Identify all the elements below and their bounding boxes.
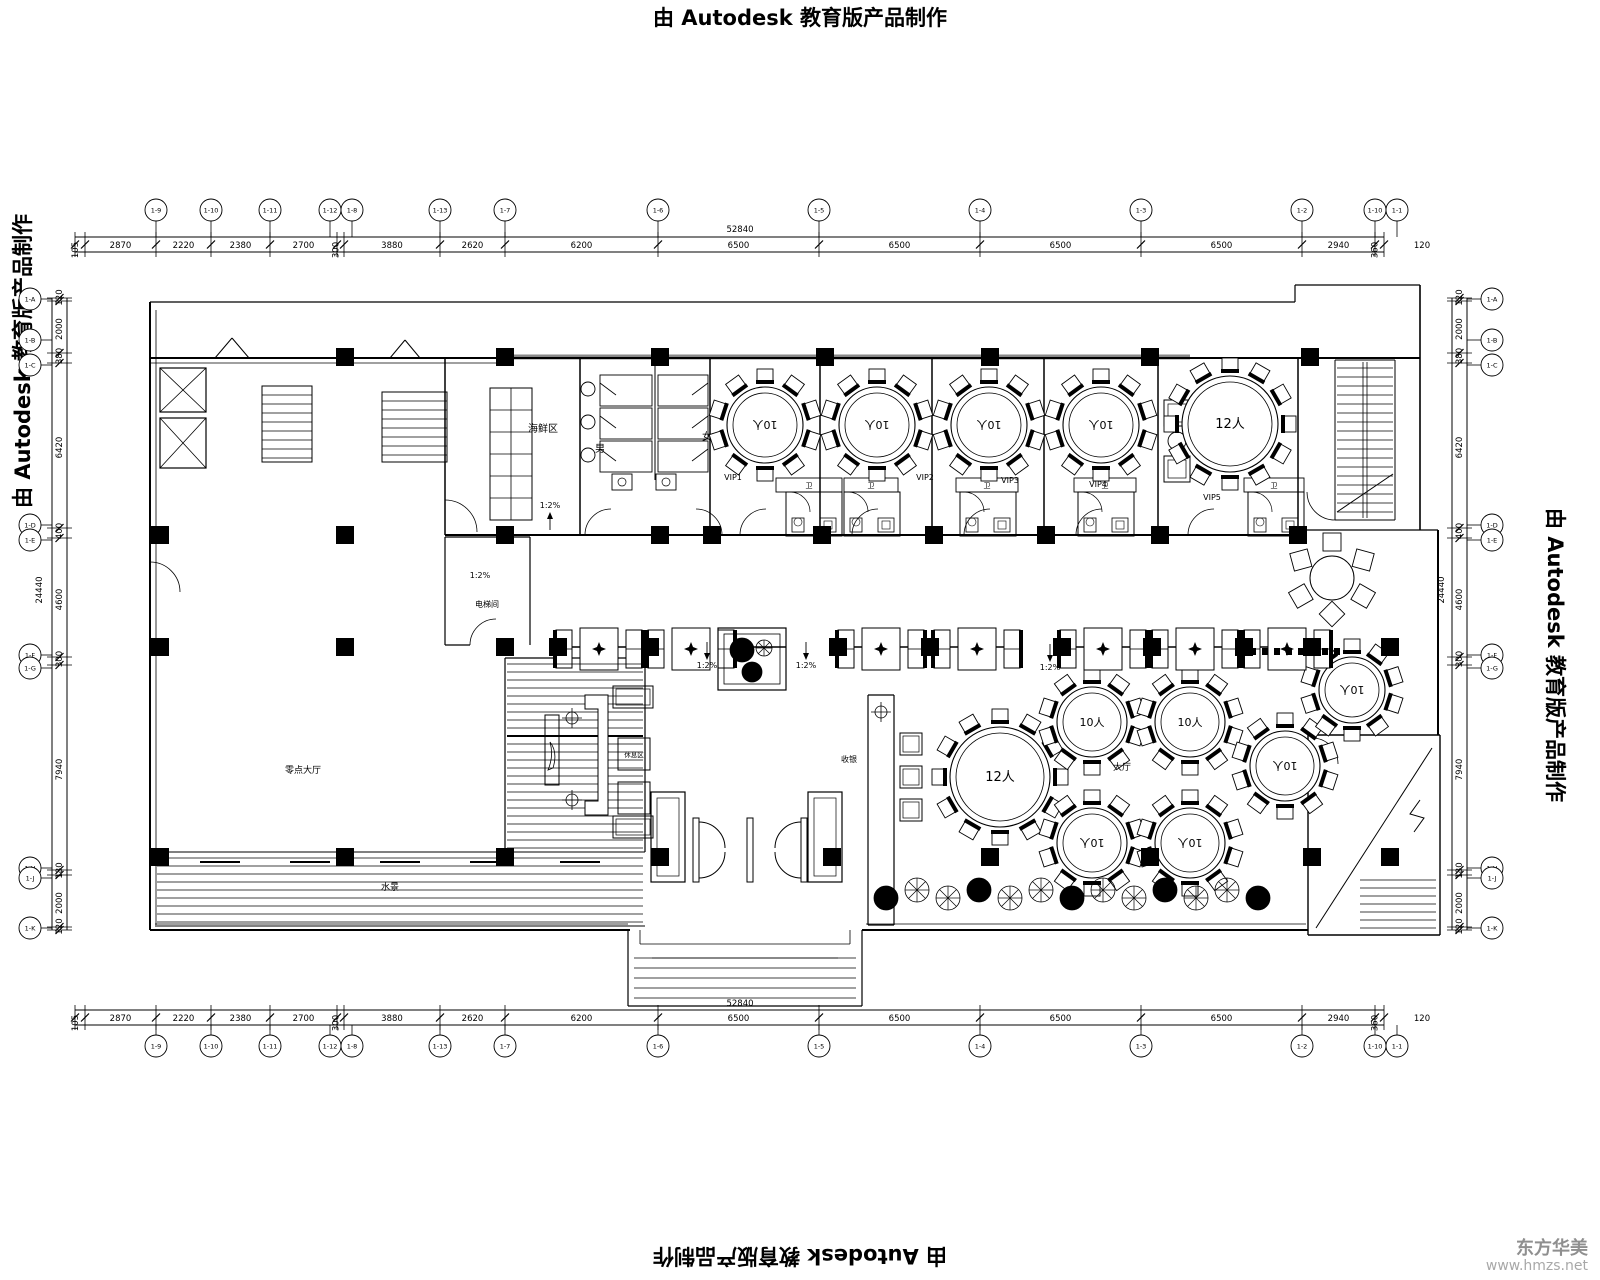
- chair: [1181, 790, 1199, 805]
- svg-text:360: 360: [1371, 1015, 1381, 1031]
- booth-unit: [931, 628, 1023, 670]
- svg-text:1-3: 1-3: [1136, 1043, 1147, 1051]
- chair: [913, 399, 933, 421]
- svg-text:1-11: 1-11: [263, 1043, 278, 1051]
- chair: [1137, 399, 1157, 421]
- chair: [1039, 818, 1059, 840]
- svg-text:1-D: 1-D: [24, 522, 36, 530]
- svg-text:180: 180: [55, 862, 65, 878]
- svg-text:1:2%: 1:2%: [1040, 663, 1061, 672]
- chair: [1276, 713, 1294, 728]
- svg-text:2380: 2380: [230, 241, 252, 251]
- chair: [1025, 399, 1045, 421]
- svg-text:1-2: 1-2: [1297, 207, 1308, 215]
- wood-deck: [507, 664, 643, 848]
- room-label-seafood: 海鲜区: [528, 422, 558, 435]
- round-table: 10人: [1137, 669, 1243, 775]
- svg-text:400: 400: [1455, 523, 1465, 539]
- svg-text:6200: 6200: [571, 1014, 593, 1024]
- svg-text:120: 120: [1414, 241, 1430, 251]
- chair: [1092, 466, 1110, 481]
- svg-text:卫: 卫: [806, 482, 813, 490]
- svg-text:1-G: 1-G: [24, 665, 36, 673]
- round-table: 12人: [1164, 358, 1296, 490]
- svg-text:4600: 4600: [55, 589, 65, 611]
- round-table: 10人: [1045, 369, 1157, 481]
- room-label-cashier: 收银: [841, 754, 857, 764]
- svg-text:1-J: 1-J: [1488, 875, 1497, 883]
- svg-text:2620: 2620: [462, 241, 484, 251]
- svg-text:2940: 2940: [1328, 1014, 1350, 1024]
- svg-text:2220: 2220: [173, 241, 195, 251]
- svg-text:1:2%: 1:2%: [796, 661, 817, 670]
- seafood-room: [445, 388, 532, 532]
- svg-text:4600: 4600: [1455, 589, 1465, 611]
- svg-text:400: 400: [55, 523, 65, 539]
- stair-flight: [262, 386, 312, 462]
- svg-text:6500: 6500: [1050, 1014, 1072, 1024]
- svg-text:6200: 6200: [571, 241, 593, 251]
- chair: [1343, 639, 1361, 654]
- room-label-hall_main: 大厅: [1113, 761, 1131, 773]
- svg-text:6420: 6420: [55, 437, 65, 459]
- svg-text:300: 300: [332, 1015, 342, 1031]
- room-label-lounge: 休息区: [624, 750, 644, 759]
- round-table: 10人: [709, 369, 821, 481]
- chair: [1223, 846, 1243, 868]
- watermark-url: www.hmzs.net: [1486, 1259, 1588, 1274]
- svg-text:1-11: 1-11: [263, 207, 278, 215]
- svg-text:2870: 2870: [110, 241, 132, 251]
- chair: [801, 399, 821, 421]
- booth-unit: [835, 628, 927, 670]
- svg-text:1:2%: 1:2%: [697, 661, 718, 670]
- chair: [1301, 693, 1321, 715]
- svg-text:1-D: 1-D: [1486, 522, 1498, 530]
- round-table: 10人: [1039, 790, 1145, 896]
- svg-text:1-A: 1-A: [25, 296, 36, 304]
- chair: [980, 466, 998, 481]
- svg-text:1-2: 1-2: [1297, 1043, 1308, 1051]
- toilets: [581, 375, 722, 535]
- chair: [1290, 549, 1312, 571]
- svg-text:1-1: 1-1: [1392, 207, 1403, 215]
- round-table: 10人: [1039, 669, 1145, 775]
- chair: [1383, 666, 1403, 688]
- svg-text:卫: 卫: [984, 482, 991, 490]
- chair: [1289, 584, 1314, 609]
- chair: [1318, 741, 1338, 763]
- floorplan-canvas: 1052870222023802700300388026206200650065…: [0, 0, 1600, 1280]
- chair: [756, 369, 774, 384]
- svg-text:6500: 6500: [728, 1014, 750, 1024]
- svg-text:1-6: 1-6: [653, 207, 664, 215]
- chair: [1383, 693, 1403, 715]
- chair: [821, 399, 841, 421]
- chair: [1343, 726, 1361, 741]
- svg-text:2700: 2700: [293, 1014, 315, 1024]
- svg-text:2000: 2000: [1455, 318, 1465, 340]
- svg-text:7940: 7940: [1455, 759, 1465, 781]
- chair: [868, 466, 886, 481]
- svg-text:2000: 2000: [55, 892, 65, 914]
- chair: [1083, 669, 1101, 684]
- chair: [1083, 760, 1101, 775]
- svg-text:380: 380: [55, 348, 65, 364]
- svg-text:300: 300: [55, 651, 65, 667]
- svg-text:1-4: 1-4: [975, 207, 986, 215]
- chair: [932, 768, 947, 786]
- room-label-vip1: VIP1: [724, 473, 742, 482]
- chair: [1039, 846, 1059, 868]
- svg-text:2940: 2940: [1328, 241, 1350, 251]
- watermark: 东方华美 www.hmzs.net: [1486, 1239, 1588, 1274]
- svg-text:卫: 卫: [1271, 482, 1278, 490]
- chair: [1319, 601, 1344, 626]
- watermark-company: 东方华美: [1486, 1239, 1588, 1259]
- chair: [1276, 804, 1294, 819]
- chair: [1092, 369, 1110, 384]
- chair: [1181, 669, 1199, 684]
- svg-text:6500: 6500: [889, 241, 911, 251]
- room-label-women: 女: [702, 430, 712, 443]
- svg-text:10人: 10人: [1178, 716, 1203, 729]
- chair: [1221, 358, 1239, 373]
- chair: [913, 429, 933, 451]
- svg-text:1-12: 1-12: [323, 1043, 338, 1051]
- svg-text:3880: 3880: [381, 1014, 403, 1024]
- lounge: [545, 686, 653, 838]
- entrance: [470, 619, 856, 998]
- svg-text:1-10: 1-10: [204, 1043, 219, 1051]
- cashier-counter: [871, 702, 922, 821]
- svg-text:1-10: 1-10: [204, 207, 219, 215]
- svg-text:10人: 10人: [1273, 759, 1298, 772]
- svg-text:1-1: 1-1: [1392, 1043, 1403, 1051]
- chair: [1045, 429, 1065, 451]
- svg-text:1-K: 1-K: [1487, 925, 1498, 933]
- room-label-pantry: 电梯间: [475, 599, 499, 609]
- room-label-vip3: VIP3: [1001, 476, 1019, 485]
- svg-text:1-C: 1-C: [24, 362, 35, 370]
- svg-text:1-C: 1-C: [1486, 362, 1497, 370]
- room-label-hall_left: 零点大厅: [285, 764, 321, 776]
- svg-text:2380: 2380: [230, 1014, 252, 1024]
- chair: [1318, 769, 1338, 791]
- svg-text:2620: 2620: [462, 1014, 484, 1024]
- svg-text:1-12: 1-12: [323, 207, 338, 215]
- chair: [1221, 475, 1239, 490]
- svg-text:1:2%: 1:2%: [540, 501, 561, 510]
- svg-text:1-7: 1-7: [500, 1043, 511, 1051]
- svg-text:6500: 6500: [728, 241, 750, 251]
- room-label-men: 男: [595, 443, 605, 455]
- chair: [1223, 697, 1243, 719]
- room-label-water: 水景: [381, 881, 399, 893]
- stair-bottom-right: [1312, 738, 1436, 928]
- svg-text:2870: 2870: [110, 1014, 132, 1024]
- dim-chain-right: 1202000380642040046003007940180200012024…: [1437, 288, 1503, 939]
- svg-text:120: 120: [1455, 918, 1465, 934]
- dim-chain-top: 1052870222023802700300388026206200650065…: [71, 199, 1430, 258]
- dim-chain-left: 1202000380642040046003007940180200012024…: [19, 288, 72, 939]
- svg-text:1-7: 1-7: [500, 207, 511, 215]
- stair-flight: [382, 392, 447, 462]
- svg-text:120: 120: [1455, 289, 1465, 305]
- svg-text:6500: 6500: [1211, 241, 1233, 251]
- svg-text:1-B: 1-B: [25, 337, 36, 345]
- chair: [1164, 415, 1179, 433]
- svg-text:52840: 52840: [726, 999, 753, 1009]
- svg-text:1-K: 1-K: [25, 925, 36, 933]
- chair: [991, 830, 1009, 845]
- svg-text:12人: 12人: [1215, 417, 1245, 432]
- svg-text:1-13: 1-13: [433, 207, 448, 215]
- chair: [868, 369, 886, 384]
- chair: [821, 429, 841, 451]
- cad-floorplan-sheet: 由 Autodesk 教育版产品制作 由 Autodesk 教育版产品制作 由 …: [0, 0, 1600, 1280]
- svg-text:2000: 2000: [1455, 892, 1465, 914]
- room-label-vip2: VIP2: [916, 473, 934, 482]
- chair: [933, 399, 953, 421]
- svg-text:1-E: 1-E: [1487, 537, 1498, 545]
- svg-text:1-5: 1-5: [814, 1043, 825, 1051]
- chair: [1025, 429, 1045, 451]
- water-feature: [157, 858, 643, 922]
- chair: [1352, 549, 1374, 571]
- svg-text:120: 120: [55, 289, 65, 305]
- chair: [1083, 790, 1101, 805]
- chair: [933, 429, 953, 451]
- svg-text:105: 105: [71, 242, 81, 258]
- booth-unit: [1149, 628, 1241, 670]
- svg-text:1-J: 1-J: [26, 875, 35, 883]
- svg-text:1-3: 1-3: [1136, 207, 1147, 215]
- svg-text:52840: 52840: [726, 225, 753, 235]
- svg-text:2700: 2700: [293, 241, 315, 251]
- chair: [1323, 533, 1341, 551]
- chair: [1223, 818, 1243, 840]
- svg-text:1-B: 1-B: [1487, 337, 1498, 345]
- svg-text:1-9: 1-9: [151, 207, 162, 215]
- chair: [756, 466, 774, 481]
- svg-text:12人: 12人: [985, 770, 1015, 785]
- chair: [801, 429, 821, 451]
- chair: [709, 399, 729, 421]
- chair: [1351, 584, 1376, 609]
- svg-text:10人: 10人: [865, 418, 890, 431]
- svg-text:10人: 10人: [1178, 836, 1203, 849]
- svg-text:1-A: 1-A: [1487, 296, 1498, 304]
- svg-text:1-5: 1-5: [814, 207, 825, 215]
- svg-text:24440: 24440: [35, 576, 45, 603]
- svg-text:10人: 10人: [1080, 716, 1105, 729]
- chair: [1039, 697, 1059, 719]
- chair: [1137, 429, 1157, 451]
- west-door: [150, 562, 180, 592]
- svg-text:7940: 7940: [55, 759, 65, 781]
- svg-text:6420: 6420: [1455, 437, 1465, 459]
- svg-text:10人: 10人: [1089, 418, 1114, 431]
- room-label-vip4: VIP4: [1089, 480, 1107, 489]
- svg-text:2220: 2220: [173, 1014, 195, 1024]
- svg-text:300: 300: [1455, 651, 1465, 667]
- svg-text:1-9: 1-9: [151, 1043, 162, 1051]
- svg-text:1-6: 1-6: [653, 1043, 664, 1051]
- svg-text:卫: 卫: [868, 482, 875, 490]
- chair: [1181, 760, 1199, 775]
- svg-text:10人: 10人: [753, 418, 778, 431]
- svg-text:120: 120: [1414, 1014, 1430, 1024]
- stair-top-right: [1307, 362, 1393, 520]
- svg-text:380: 380: [1455, 348, 1465, 364]
- round-table: 10人: [821, 369, 933, 481]
- svg-text:1:2%: 1:2%: [470, 571, 491, 580]
- svg-text:6500: 6500: [1050, 241, 1072, 251]
- svg-text:180: 180: [1455, 862, 1465, 878]
- chair: [1053, 768, 1068, 786]
- table-6-seat: [1289, 533, 1376, 627]
- svg-text:6500: 6500: [889, 1014, 911, 1024]
- svg-text:300: 300: [332, 242, 342, 258]
- svg-text:10人: 10人: [1340, 683, 1365, 696]
- svg-text:1-G: 1-G: [1486, 665, 1498, 673]
- svg-text:360: 360: [1371, 242, 1381, 258]
- chair: [980, 369, 998, 384]
- svg-text:10人: 10人: [977, 418, 1002, 431]
- chair: [1232, 769, 1252, 791]
- chair: [991, 709, 1009, 724]
- svg-text:105: 105: [71, 1015, 81, 1031]
- svg-text:2000: 2000: [55, 318, 65, 340]
- chair: [1045, 399, 1065, 421]
- svg-text:1-10: 1-10: [1368, 207, 1383, 215]
- svg-text:1-8: 1-8: [347, 1043, 358, 1051]
- round-table: 10人: [933, 369, 1045, 481]
- svg-text:1-10: 1-10: [1368, 1043, 1383, 1051]
- svg-text:1-13: 1-13: [433, 1043, 448, 1051]
- room-label-vip5: VIP5: [1203, 493, 1221, 502]
- svg-text:6500: 6500: [1211, 1014, 1233, 1024]
- chair: [1281, 415, 1296, 433]
- svg-text:3880: 3880: [381, 241, 403, 251]
- svg-text:10人: 10人: [1080, 836, 1105, 849]
- svg-text:1-4: 1-4: [975, 1043, 986, 1051]
- svg-text:1-E: 1-E: [25, 537, 36, 545]
- dim-chain-bottom: 1052870222023802700300388026206200650065…: [71, 999, 1430, 1057]
- svg-text:1-8: 1-8: [347, 207, 358, 215]
- svg-text:120: 120: [55, 918, 65, 934]
